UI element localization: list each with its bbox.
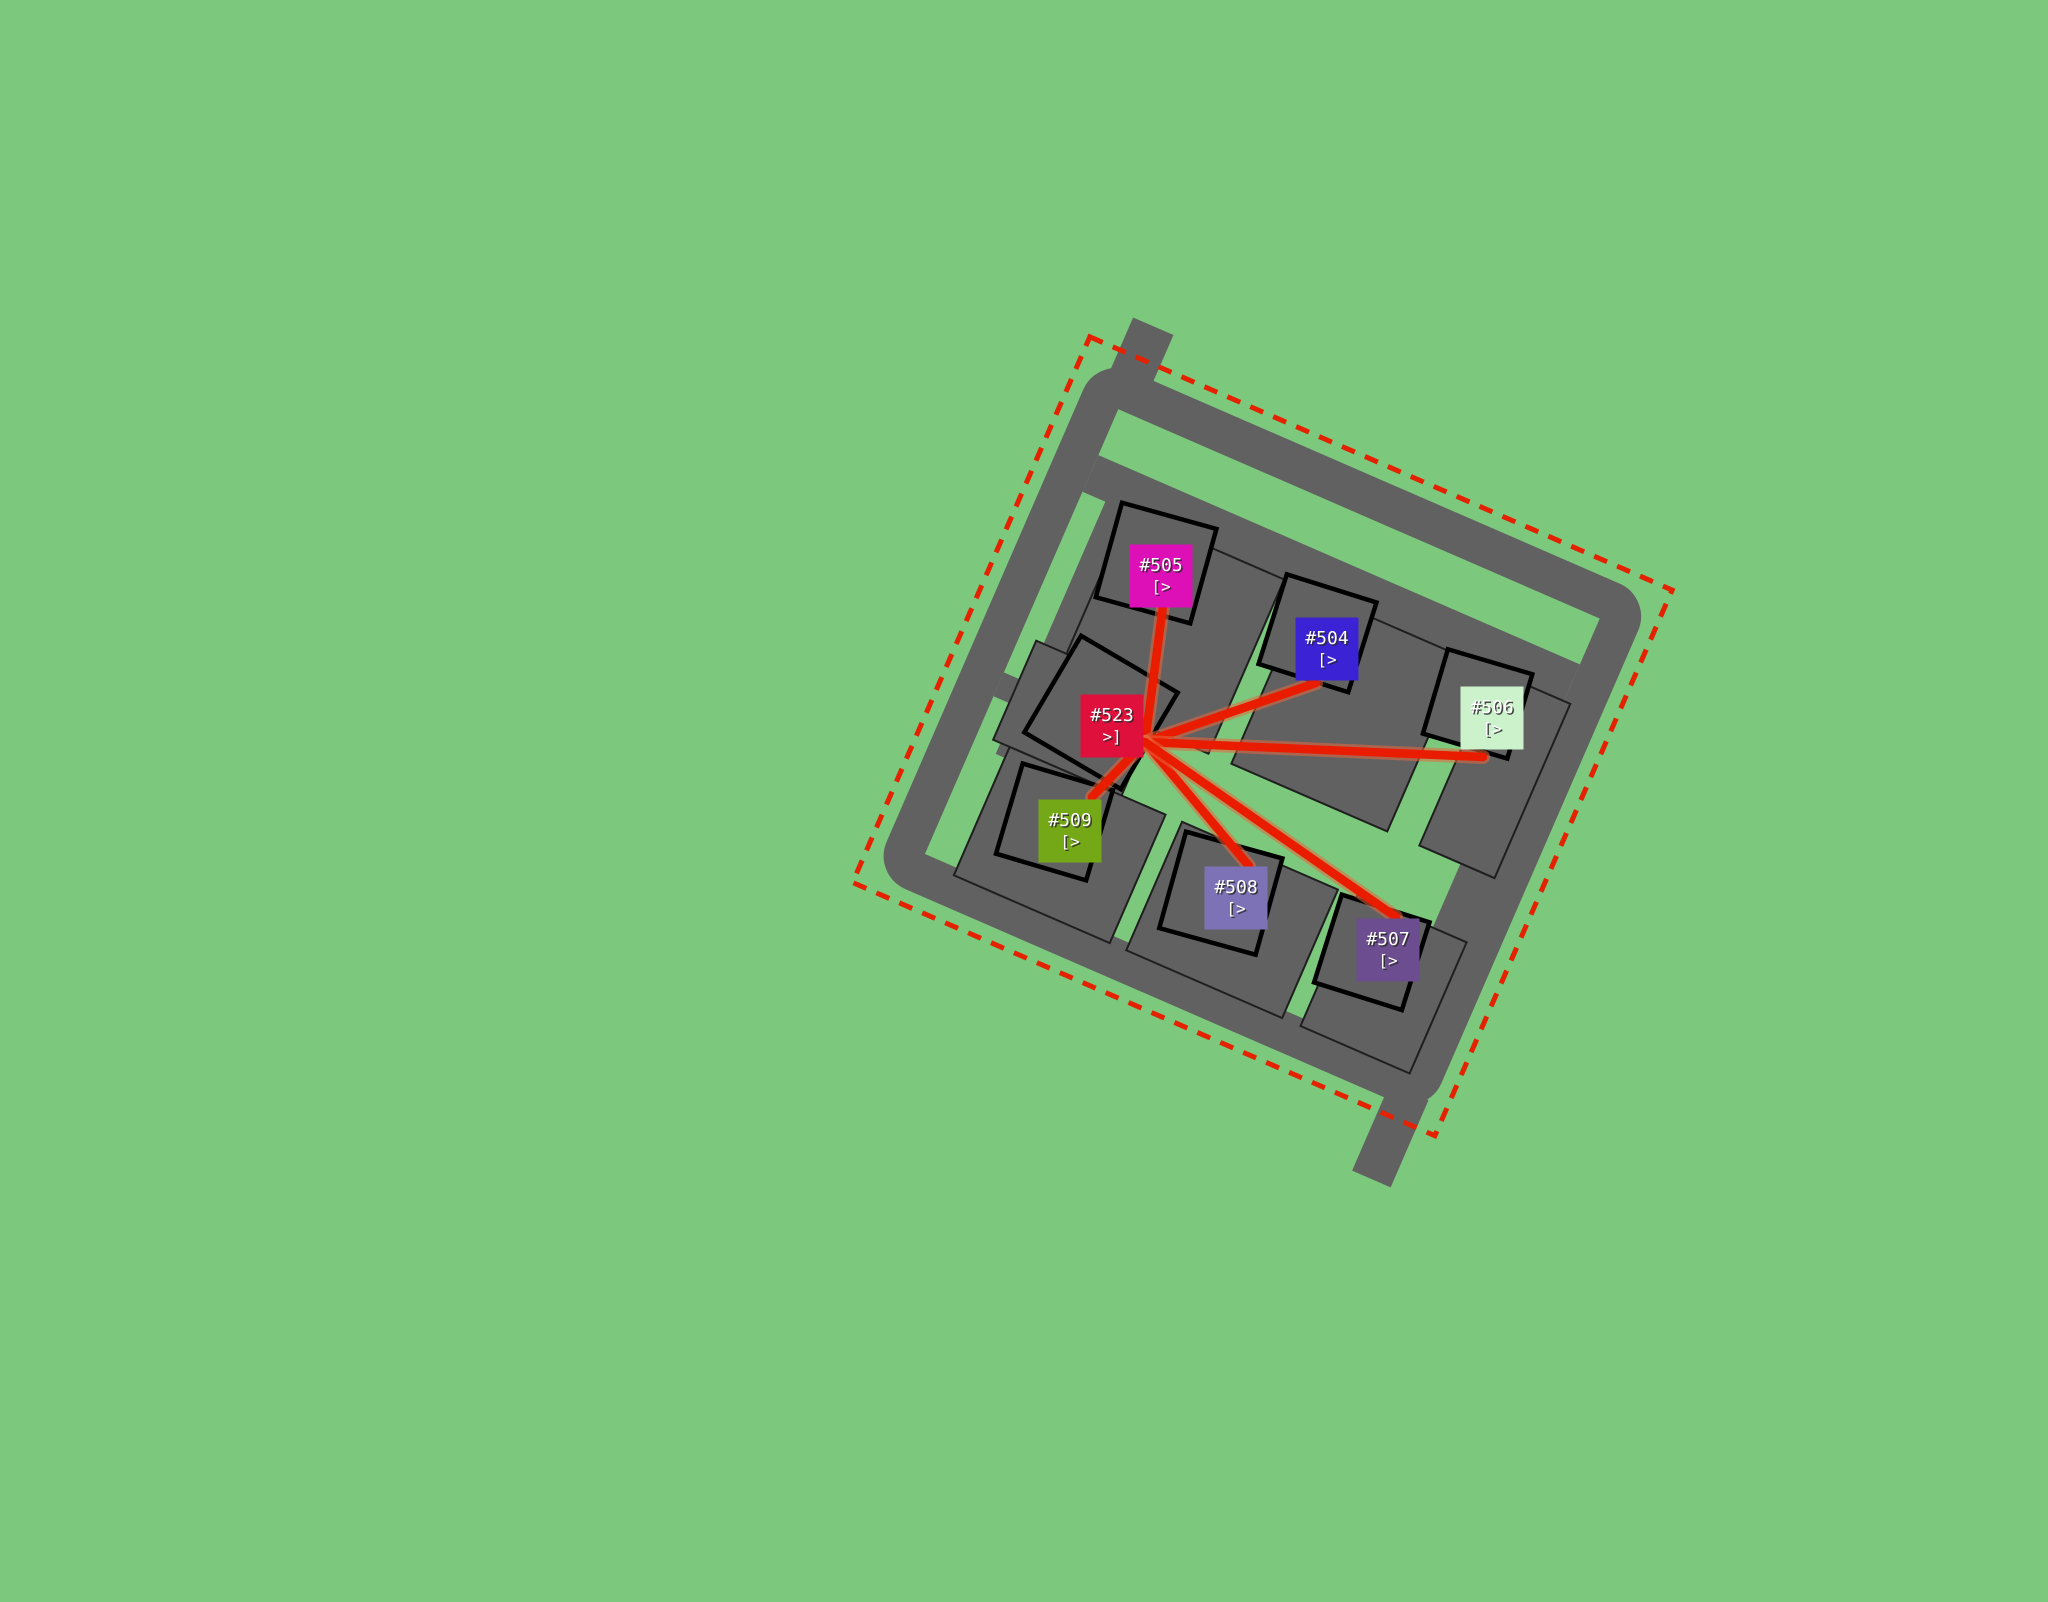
marker-flag-505: [> [1151,577,1170,596]
marker-id-504: #504 [1305,628,1348,649]
marker-box-505[interactable] [1130,545,1193,608]
marker-flag-523: >] [1102,727,1121,746]
marker-box-508[interactable] [1205,867,1268,930]
marker-id-508: #508 [1214,877,1257,898]
marker-id-506: #506 [1470,697,1513,718]
marker-box-523[interactable] [1081,695,1144,758]
marker-flag-507: [> [1378,951,1397,970]
marker-504[interactable]: #504[> [1296,618,1359,681]
marker-box-506[interactable] [1461,687,1524,750]
marker-id-523: #523 [1090,705,1133,726]
marker-box-504[interactable] [1296,618,1359,681]
marker-509[interactable]: #509[> [1039,800,1102,863]
marker-box-507[interactable] [1357,919,1420,982]
marker-id-509: #509 [1048,810,1091,831]
marker-id-507: #507 [1366,929,1409,950]
marker-flag-508: [> [1226,899,1245,918]
map-canvas: #505[>#504[>#506[>#523>]#509[>#508[>#507… [0,0,2048,1602]
marker-507[interactable]: #507[> [1357,919,1420,982]
marker-box-509[interactable] [1039,800,1102,863]
marker-505[interactable]: #505[> [1130,545,1193,608]
marker-flag-506: [> [1482,719,1501,738]
map-viewport[interactable]: #505[>#504[>#506[>#523>]#509[>#508[>#507… [0,0,2048,1602]
marker-506[interactable]: #506[> [1461,687,1524,750]
marker-id-505: #505 [1139,555,1182,576]
marker-523[interactable]: #523>] [1081,695,1144,758]
marker-flag-504: [> [1317,650,1336,669]
marker-flag-509: [> [1060,832,1079,851]
marker-508[interactable]: #508[> [1205,867,1268,930]
